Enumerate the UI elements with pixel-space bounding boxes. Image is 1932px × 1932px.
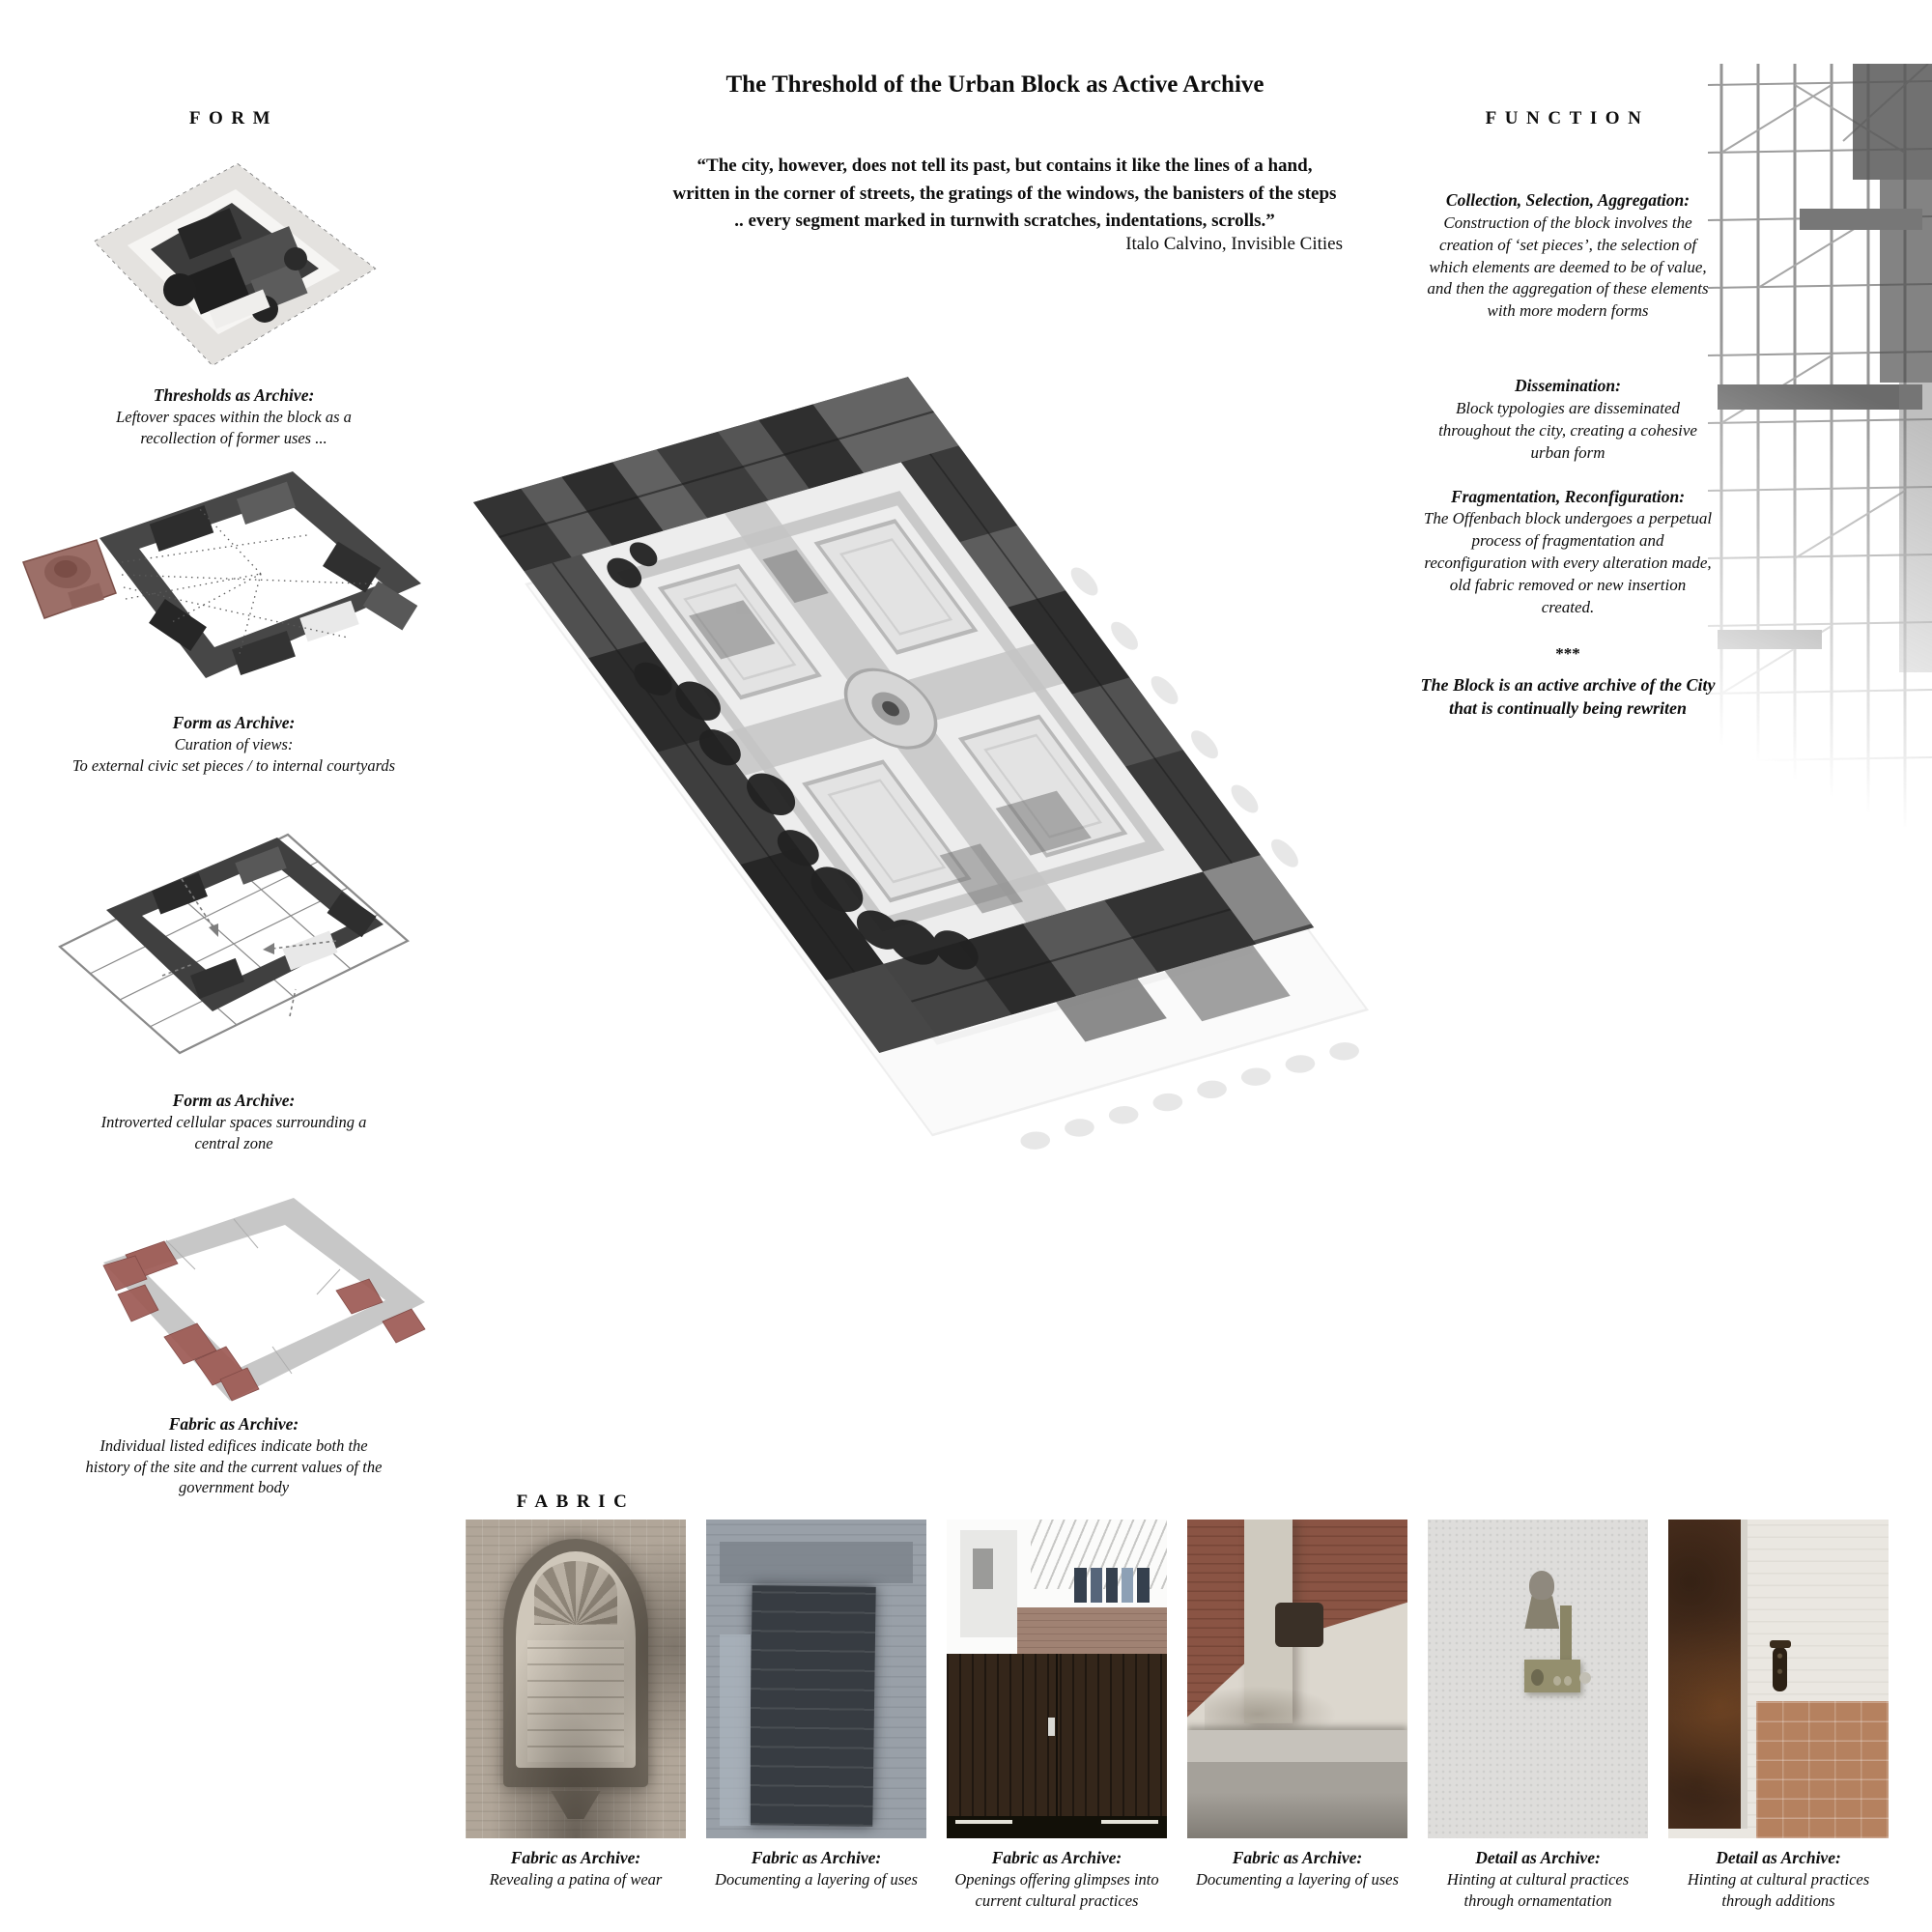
fabric-caption-3: Fabric as Archive: Openings offering gli… [947,1847,1167,1911]
photo-courtyard-gate [947,1520,1167,1838]
function-block-1: Collection, Selection, Aggregation: Cons… [1399,189,1737,323]
function-block-2-body: Block typologies are disseminated throug… [1399,398,1737,465]
photo-corner-layers [1187,1520,1407,1838]
fabric-caption-6-body: Hinting at cultural practices through ad… [1668,1869,1889,1912]
page-title: The Threshold of the Urban Block as Acti… [580,71,1410,99]
form-diagram-grid [48,794,420,1089]
fabric-caption-5-body: Hinting at cultural practices through or… [1428,1869,1648,1912]
form-caption-4: Fabric as Archive: Individual listed edi… [21,1413,446,1498]
form-caption-4-body: Individual listed edifices indicate both… [21,1435,446,1498]
form-caption-4-title: Fabric as Archive: [21,1413,446,1435]
fabric-caption-1-body: Revealing a patina of wear [466,1869,686,1890]
function-conclusion: The Block is an active archive of the Ci… [1399,673,1737,721]
fabric-caption-1: Fabric as Archive: Revealing a patina of… [466,1847,686,1911]
fabric-caption-1-title: Fabric as Archive: [466,1847,686,1869]
photo-ornate-niche [466,1520,686,1838]
central-axonometric-drawing [367,348,1468,1280]
function-block-2: Dissemination: Block typologies are diss… [1399,375,1737,464]
quote-attribution: Italo Calvino, Invisible Cities [618,234,1343,255]
function-block-3-body: The Offenbach block undergoes a perpetua… [1399,508,1737,619]
function-heading: FUNCTION [1406,108,1729,129]
fabric-caption-5-title: Detail as Archive: [1428,1847,1648,1869]
function-block-3-title: Fragmentation, Reconfiguration: [1399,486,1737,509]
fabric-caption-6-title: Detail as Archive: [1668,1847,1889,1869]
photo-bust-ornament [1428,1520,1648,1838]
fabric-caption-2: Fabric as Archive: Documenting a layerin… [706,1847,926,1911]
red-church [23,540,116,618]
fabric-heading: FABRIC [466,1492,686,1513]
function-text-column: Collection, Selection, Aggregation: Cons… [1399,189,1737,721]
form-diagram-thresholds [66,145,404,386]
photo-door-addition [1668,1520,1889,1838]
fabric-caption-4-body: Documenting a layering of uses [1187,1869,1407,1890]
fabric-caption-3-body: Openings offering glimpses into current … [947,1869,1167,1912]
function-block-1-title: Collection, Selection, Aggregation: [1399,189,1737,213]
fabric-caption-row: Fabric as Archive: Revealing a patina of… [466,1847,1889,1911]
function-block-1-body: Construction of the block involves the c… [1399,213,1737,324]
fabric-caption-2-body: Documenting a layering of uses [706,1869,926,1890]
photo-bricked-opening [706,1520,926,1838]
form-heading: FORM [31,108,437,129]
function-block-3: Fragmentation, Reconfiguration: The Offe… [1399,486,1737,619]
fabric-caption-5: Detail as Archive: Hinting at cultural p… [1428,1847,1648,1911]
scaffolding-photo [1708,64,1932,827]
fabric-caption-4: Fabric as Archive: Documenting a layerin… [1187,1847,1407,1911]
poster-board: FORM Thresholds as Archive: Leftover spa… [0,0,1932,1932]
fabric-caption-3-title: Fabric as Archive: [947,1847,1167,1869]
fabric-photo-row [466,1520,1889,1838]
fabric-caption-6: Detail as Archive: Hinting at cultural p… [1668,1847,1889,1911]
function-separator: *** [1399,644,1737,664]
function-block-2-title: Dissemination: [1399,375,1737,398]
fabric-caption-4-title: Fabric as Archive: [1187,1847,1407,1869]
quote-text: “The city, however, does not tell its pa… [618,153,1391,236]
fabric-caption-2-title: Fabric as Archive: [706,1847,926,1869]
